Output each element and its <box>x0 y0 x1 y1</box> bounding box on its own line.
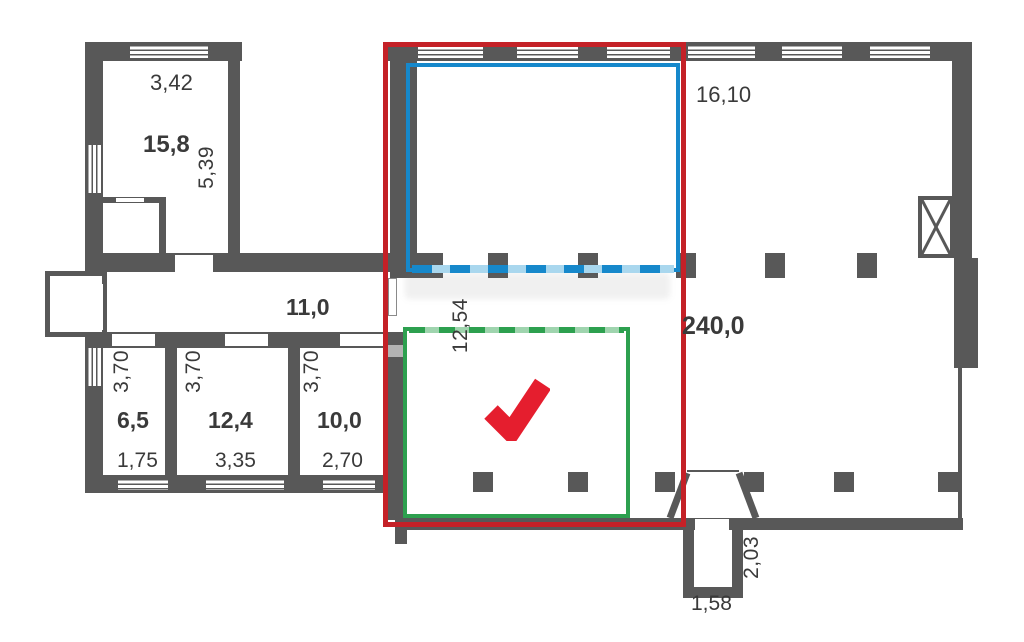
dim-label: 3,70 <box>110 350 134 393</box>
dim-label: 1,58 <box>691 592 732 616</box>
window <box>130 45 208 58</box>
dim-label: 1,75 <box>117 449 158 473</box>
dim-label: 3,42 <box>150 70 193 96</box>
wall <box>228 42 240 257</box>
closet-wall <box>159 197 166 257</box>
door-gap <box>112 334 155 346</box>
wall <box>958 368 962 520</box>
window <box>323 479 375 490</box>
wall <box>85 253 417 272</box>
wall <box>165 348 177 475</box>
dim-label: 3,70 <box>300 350 324 393</box>
dim-label: 2,03 <box>740 536 764 579</box>
window <box>87 145 101 193</box>
floor-plan: 3,42 15,8 5,39 11,0 16,10 240,0 12,54 3,… <box>0 0 1024 642</box>
crossed-box-icon <box>918 196 954 258</box>
window <box>118 479 168 490</box>
dim-label: 3,70 <box>182 350 206 393</box>
dim-label: 3,35 <box>215 449 256 473</box>
vestibule-outline <box>683 530 743 598</box>
window <box>688 45 755 58</box>
window <box>782 45 842 58</box>
wall <box>288 348 300 475</box>
check-icon <box>482 375 550 441</box>
area-label: 6,5 <box>117 407 149 434</box>
door-gap <box>340 334 385 346</box>
dim-label: 12,54 <box>449 298 473 353</box>
area-label: 12,4 <box>208 407 253 434</box>
column <box>938 472 958 492</box>
column <box>765 253 785 278</box>
wall <box>954 258 978 368</box>
vestibule-door-gap <box>695 519 729 530</box>
door-gap <box>225 334 268 346</box>
door-gap <box>175 255 213 272</box>
window <box>870 45 930 58</box>
area-label: 240,0 <box>682 312 745 341</box>
closet-door-gap <box>116 198 144 202</box>
selection-red-rectangle <box>383 42 686 527</box>
window <box>87 348 101 386</box>
porch-door-gap <box>85 284 103 330</box>
area-label: 10,0 <box>317 407 362 434</box>
dim-label: 16,10 <box>696 82 751 108</box>
column <box>857 253 877 278</box>
column <box>834 472 854 492</box>
dim-label: 5,39 <box>195 146 219 189</box>
window <box>206 479 284 490</box>
area-label: 11,0 <box>286 294 330 321</box>
area-label: 15,8 <box>143 131 190 159</box>
wall <box>952 61 972 258</box>
dim-label: 2,70 <box>322 449 363 473</box>
